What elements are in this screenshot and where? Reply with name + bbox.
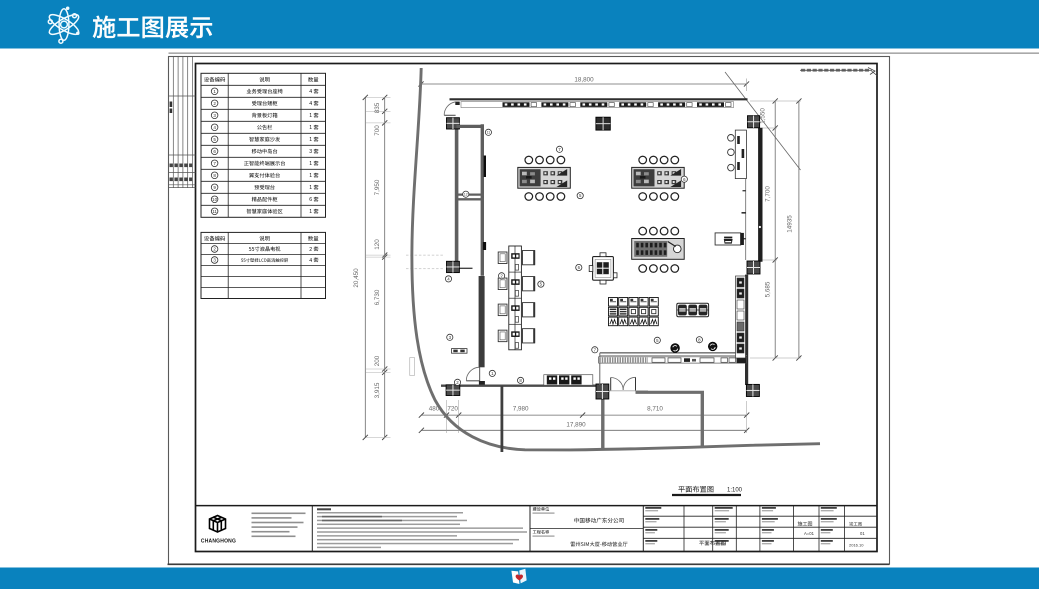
svg-text:4: 4 [213, 125, 216, 130]
svg-text:1:100: 1:100 [727, 487, 743, 493]
svg-text:3: 3 [213, 258, 216, 263]
svg-text:11: 11 [212, 209, 217, 214]
svg-text:7,950: 7,950 [374, 179, 381, 195]
svg-text:1: 1 [309, 161, 312, 167]
svg-text:8,710: 8,710 [647, 406, 663, 413]
svg-text:1: 1 [309, 113, 312, 119]
svg-text:14935: 14935 [787, 215, 794, 233]
svg-text:2016.10: 2016.10 [849, 543, 864, 548]
svg-text:12: 12 [464, 192, 468, 196]
svg-text:1: 1 [213, 89, 216, 94]
svg-text:4: 4 [309, 258, 312, 264]
svg-text:700: 700 [374, 125, 381, 136]
svg-text:17,890: 17,890 [566, 421, 586, 428]
svg-text:01: 01 [860, 531, 865, 536]
svg-text:11: 11 [487, 131, 491, 135]
svg-text:8: 8 [213, 173, 216, 178]
svg-text:6: 6 [309, 197, 312, 203]
svg-text:4: 4 [309, 101, 312, 107]
svg-text:CHANGHONG: CHANGHONG [201, 539, 236, 545]
svg-text:835: 835 [374, 102, 381, 113]
svg-text:10: 10 [212, 197, 218, 202]
svg-text:3,915: 3,915 [374, 382, 381, 398]
svg-text:720: 720 [447, 406, 458, 413]
svg-text:1: 1 [309, 209, 312, 215]
svg-text:5: 5 [213, 137, 216, 142]
svg-text:200: 200 [374, 355, 381, 366]
svg-text:1: 1 [309, 185, 312, 191]
svg-text:2: 2 [213, 247, 216, 252]
svg-text:6: 6 [213, 149, 216, 154]
svg-text:A=01: A=01 [804, 531, 815, 536]
svg-text:7: 7 [213, 161, 216, 166]
svg-text:6,730: 6,730 [374, 289, 381, 305]
svg-text:18,800: 18,800 [574, 76, 594, 83]
svg-text:120: 120 [374, 239, 381, 250]
svg-text:4: 4 [309, 89, 312, 95]
svg-text:7,700: 7,700 [765, 186, 772, 202]
svg-text:1: 1 [309, 125, 312, 131]
svg-text:3: 3 [309, 149, 312, 155]
svg-text:20,450: 20,450 [353, 268, 360, 288]
svg-text:9: 9 [213, 185, 216, 190]
svg-text:1: 1 [309, 173, 312, 179]
svg-text:2: 2 [213, 101, 216, 106]
svg-text:3: 3 [213, 113, 216, 118]
svg-text:1: 1 [309, 137, 312, 143]
svg-text:2: 2 [309, 247, 312, 253]
svg-text:5,685: 5,685 [765, 281, 772, 297]
svg-text:7,980: 7,980 [513, 406, 529, 413]
